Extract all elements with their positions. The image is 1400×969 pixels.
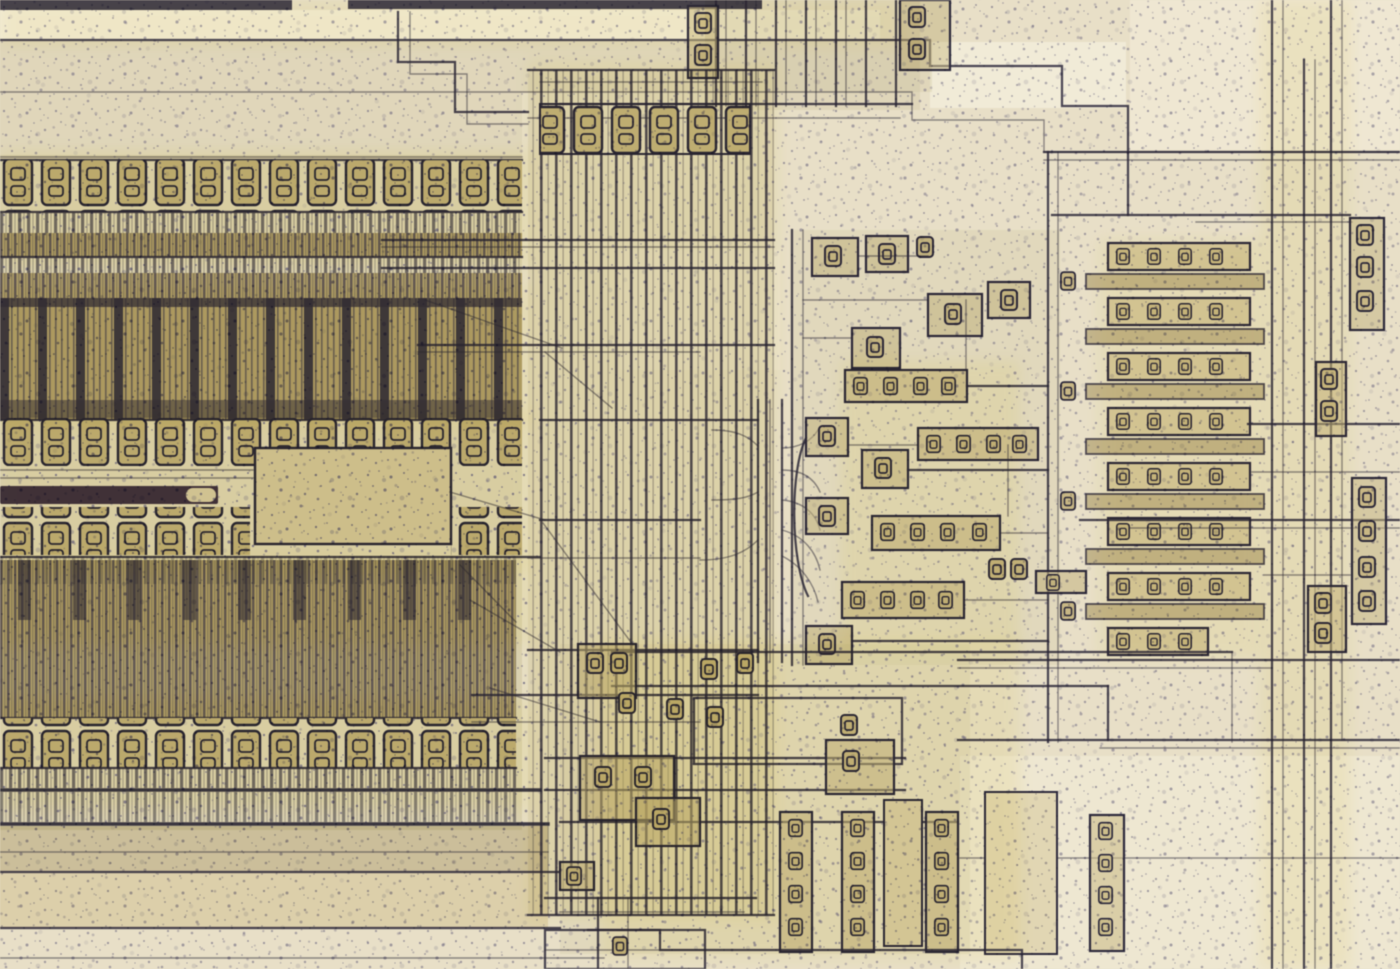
contact-pad bbox=[1359, 591, 1375, 611]
contact-pad bbox=[1359, 521, 1375, 541]
contact-pad bbox=[1148, 469, 1160, 485]
contact-pad bbox=[1061, 382, 1075, 400]
contact-pad bbox=[1148, 359, 1160, 375]
contact-pad bbox=[1315, 593, 1331, 613]
contact-pad bbox=[942, 378, 955, 395]
contact-pad bbox=[789, 820, 802, 837]
contact-pad bbox=[619, 693, 635, 713]
contact-bar-row bbox=[1108, 408, 1250, 435]
contact-pad bbox=[613, 937, 627, 955]
contact-pad bbox=[1001, 290, 1017, 310]
contact-pad bbox=[789, 919, 802, 936]
contact-pad bbox=[1357, 257, 1373, 277]
contact-bar-row bbox=[1108, 518, 1250, 545]
contact-pad bbox=[701, 659, 717, 679]
bus-contact-row bbox=[540, 104, 750, 154]
contact-pad bbox=[1357, 291, 1373, 311]
contact-pad bbox=[819, 506, 835, 526]
contact-bar-row bbox=[1108, 573, 1250, 600]
contact-pad bbox=[875, 458, 891, 478]
contact-bar-row bbox=[1108, 353, 1250, 380]
contact-bar-row bbox=[1108, 463, 1250, 490]
contact-pad bbox=[879, 244, 895, 264]
contact-bar-row bbox=[1108, 243, 1250, 270]
die-photo bbox=[0, 0, 1400, 969]
contact-pad bbox=[843, 751, 859, 771]
contact-pad bbox=[1148, 634, 1160, 650]
contact-pad bbox=[1013, 436, 1026, 453]
contact-pad bbox=[1099, 887, 1112, 904]
contact-pad bbox=[1099, 855, 1112, 872]
contact-pad bbox=[1359, 557, 1375, 577]
contact-pad bbox=[917, 237, 933, 257]
contact-pad bbox=[1148, 304, 1160, 320]
contact-pad bbox=[653, 809, 669, 829]
contact-pad bbox=[1061, 602, 1075, 620]
contact-pad bbox=[1117, 579, 1129, 595]
contact-pad bbox=[945, 304, 961, 324]
contact-pad bbox=[737, 653, 753, 673]
contact-pad bbox=[1359, 487, 1375, 507]
contact-pad bbox=[819, 426, 835, 446]
contact-pad bbox=[935, 853, 948, 870]
contact-pad bbox=[789, 886, 802, 903]
contact-pad bbox=[911, 524, 924, 541]
contact-pad bbox=[851, 919, 864, 936]
contact-pad bbox=[695, 45, 711, 65]
contact-pad bbox=[1179, 634, 1191, 650]
contact-pad bbox=[973, 524, 986, 541]
contact-pad bbox=[851, 853, 864, 870]
contact-pad bbox=[909, 7, 925, 27]
contact-pad bbox=[635, 767, 651, 787]
contact-pad bbox=[1179, 414, 1191, 430]
contact-pad bbox=[1210, 304, 1222, 320]
contact-pad bbox=[841, 715, 857, 735]
die-photo-stage bbox=[0, 0, 1400, 969]
contact-pad bbox=[1099, 919, 1112, 936]
contact-strip bbox=[780, 812, 812, 952]
contact-pad bbox=[1179, 359, 1191, 375]
contact-pad bbox=[914, 378, 927, 395]
contact-pad bbox=[1179, 249, 1191, 265]
contact-pad bbox=[1061, 492, 1075, 510]
contact-pad bbox=[1210, 414, 1222, 430]
contact-pad bbox=[939, 592, 952, 609]
contact-pad bbox=[851, 886, 864, 903]
contact-pad bbox=[1061, 272, 1075, 290]
contact-ladder-row bbox=[0, 718, 516, 768]
contact-strip bbox=[842, 812, 874, 952]
contact-pad bbox=[611, 653, 627, 673]
contact-pad bbox=[789, 853, 802, 870]
contact-pad bbox=[1210, 359, 1222, 375]
contact-pad bbox=[1179, 524, 1191, 540]
contact-pad bbox=[1117, 304, 1129, 320]
glint-highlight bbox=[186, 488, 216, 502]
contact-pad bbox=[851, 592, 864, 609]
contact-pad bbox=[1179, 304, 1191, 320]
contact-bar-row bbox=[1108, 298, 1250, 325]
contact-pad bbox=[1117, 524, 1129, 540]
contact-pad bbox=[695, 13, 711, 33]
contact-pad bbox=[1210, 469, 1222, 485]
contact-pad bbox=[1357, 225, 1373, 245]
contact-pad bbox=[1148, 249, 1160, 265]
contact-pad bbox=[881, 592, 894, 609]
contact-pad bbox=[987, 436, 1000, 453]
contact-pad bbox=[825, 246, 841, 266]
contact-pad bbox=[1210, 579, 1222, 595]
contact-pad bbox=[854, 378, 867, 395]
contact-pad bbox=[1099, 823, 1112, 840]
contact-pad bbox=[909, 39, 925, 59]
contact-pad bbox=[927, 436, 940, 453]
contact-pad bbox=[1148, 414, 1160, 430]
contact-pad bbox=[911, 592, 924, 609]
contact-pad bbox=[1117, 359, 1129, 375]
inner-cell-window bbox=[255, 448, 451, 544]
contact-pad bbox=[1117, 414, 1129, 430]
contact-pad bbox=[1117, 469, 1129, 485]
contact-pad bbox=[667, 699, 683, 719]
contact-pad bbox=[587, 653, 603, 673]
contact-pad bbox=[1148, 579, 1160, 595]
contact-strip bbox=[926, 812, 958, 952]
purple-metal-trace bbox=[0, 486, 218, 504]
contact-pad bbox=[941, 524, 954, 541]
contact-pad bbox=[1315, 623, 1331, 643]
contact-pad bbox=[595, 767, 611, 787]
contact-pad bbox=[1210, 524, 1222, 540]
contact-pad bbox=[1210, 249, 1222, 265]
contact-pad bbox=[1179, 579, 1191, 595]
contact-pad bbox=[935, 886, 948, 903]
contact-pad bbox=[1148, 524, 1160, 540]
contact-pad bbox=[851, 820, 864, 837]
contact-pad bbox=[1047, 575, 1059, 591]
contact-pad bbox=[867, 337, 883, 357]
contact-pad bbox=[1117, 634, 1129, 650]
contact-pad bbox=[1011, 559, 1027, 579]
contact-pad bbox=[1321, 369, 1337, 389]
contact-pad bbox=[935, 919, 948, 936]
contact-strip bbox=[1090, 815, 1124, 951]
contact-pad bbox=[989, 559, 1005, 579]
contact-pad bbox=[957, 436, 970, 453]
contact-pad bbox=[1179, 469, 1191, 485]
left-transistor-array bbox=[0, 160, 604, 958]
contact-pad bbox=[1321, 401, 1337, 421]
contact-ladder-row bbox=[0, 160, 522, 212]
contact-pad bbox=[881, 524, 894, 541]
contact-pad bbox=[1117, 249, 1129, 265]
contact-pad bbox=[567, 867, 581, 885]
contact-pad bbox=[884, 378, 897, 395]
bright-channel bbox=[0, 872, 548, 928]
contact-pad bbox=[707, 707, 723, 727]
contact-pad bbox=[935, 820, 948, 837]
